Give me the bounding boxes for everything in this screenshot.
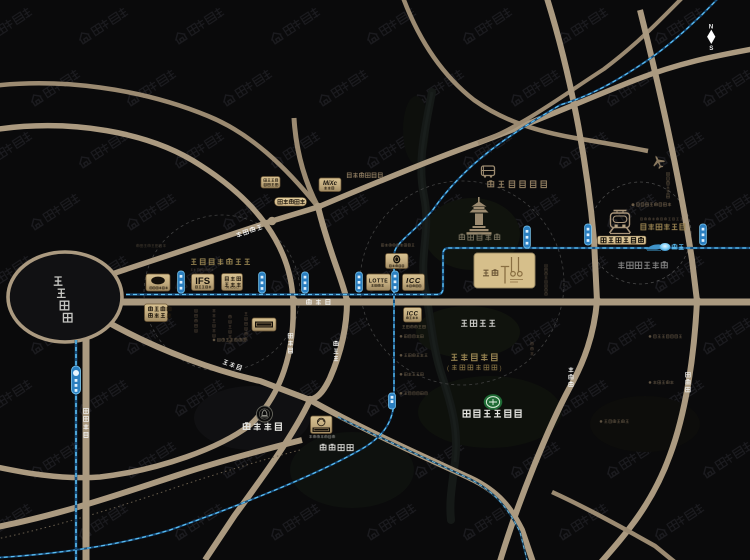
svg-text:): ) (500, 365, 502, 372)
svg-text:IFS: IFS (195, 276, 210, 287)
svg-text:N: N (709, 24, 714, 31)
svg-text:S: S (709, 45, 713, 52)
svg-text:ICC: ICC (406, 276, 421, 285)
svg-text:MiXc: MiXc (323, 181, 338, 187)
svg-text:LOTTE: LOTTE (369, 279, 389, 285)
svg-text:TAI KOO LI: TAI KOO LI (225, 286, 238, 290)
